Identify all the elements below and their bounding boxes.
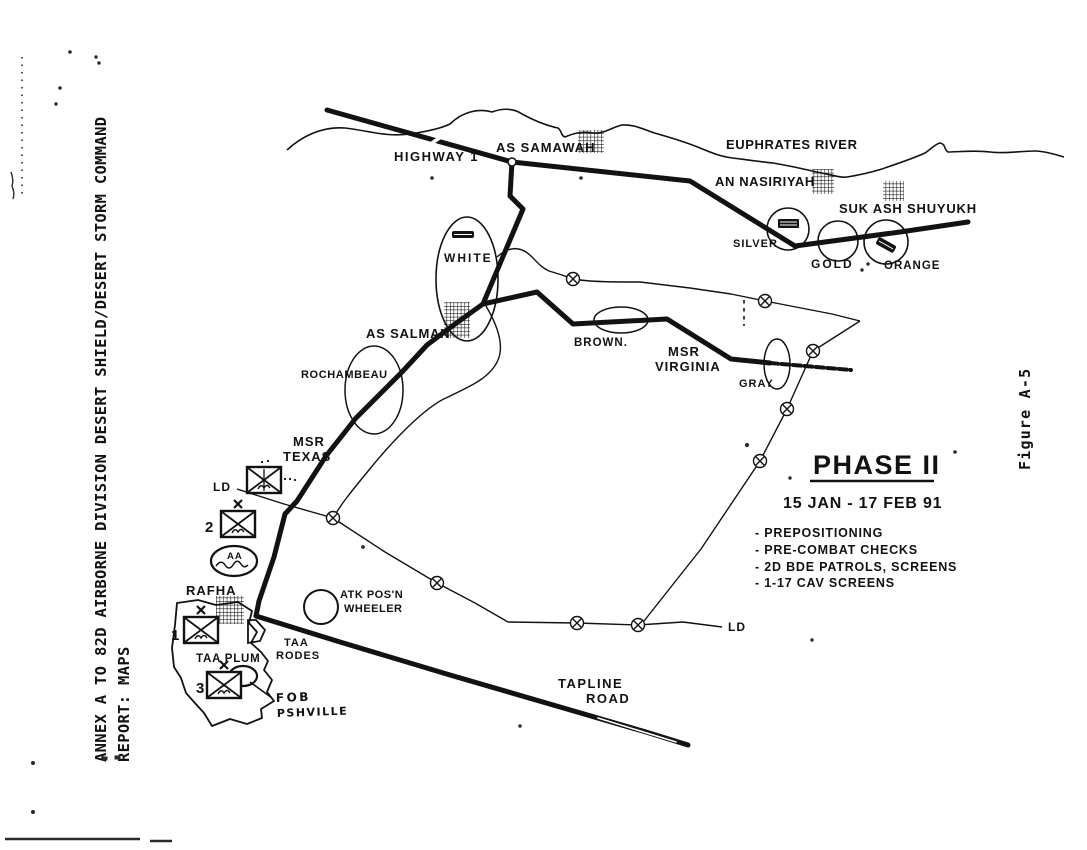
unit-symbol-1bde (184, 606, 218, 643)
msr-virginia-label-1: MSR (668, 344, 700, 359)
phase-bullet-2: - PRE-COMBAT CHECKS (755, 543, 918, 557)
msr-texas-label-1: MSR (293, 434, 325, 449)
aa-label: AA (227, 551, 243, 562)
white-airstrip-icon (452, 231, 474, 238)
fob-label-2: PSHVILLE (277, 705, 349, 720)
north-south-road (483, 162, 523, 304)
phase-bullet-3: - 2D BDE PATROLS, SCREENS (755, 560, 957, 574)
rafha-label: RAFHA (186, 583, 237, 598)
msr-texas-label-2: TEXAS (283, 449, 331, 464)
annex-annotation-line1: ANNEX A TO 82D AIRBORNE DIVISION DESERT … (92, 117, 110, 762)
checkpoint-marker-icon (431, 577, 444, 590)
checkpoint-marker-icon (781, 403, 794, 416)
silver-airstrip-icon (778, 219, 799, 228)
orange-label: ORANGE (884, 260, 940, 272)
gray-label: GRAY (739, 378, 774, 390)
tapline-road-label-2: ROAD (586, 691, 630, 706)
msr-virginia-road (483, 292, 770, 363)
rochambeau-label: ROCHAMBEAU (301, 369, 388, 381)
checkpoint-marker-icon (754, 455, 767, 468)
atk-posn-label-2: WHEELER (344, 603, 403, 615)
checkpoint-marker-icon (571, 617, 584, 630)
white-label: WHITE (444, 251, 493, 265)
tapline-road-label-1: TAPLINE (558, 676, 623, 691)
gold-label: GOLD (811, 257, 854, 271)
south-ld-line (508, 622, 722, 627)
checkpoint-marker-icon (759, 295, 772, 308)
an-nasiriyah-label: AN NASIRIYAH (715, 174, 815, 189)
brigade-echelon-icon (234, 500, 242, 508)
as-salman-label: AS SALMAN (366, 326, 450, 341)
checkpoint-marker-icon (632, 619, 645, 632)
msr-virginia-label-2: VIRGINIA (655, 359, 721, 374)
highway1-label: HIGHWAY 1 (394, 149, 479, 164)
phase-bullet-1: - PREPOSITIONING (755, 526, 883, 540)
brigade-echelon-icon (197, 606, 205, 614)
taa-rodes-label-1: TAA (284, 637, 309, 649)
rafha-town-icon (216, 596, 244, 624)
an-nasiriyah-town-icon (812, 169, 834, 194)
north-boundary (497, 249, 860, 321)
unit-number-3: 3 (196, 680, 204, 697)
atk-posn-label-1: ATK POS'N (340, 589, 403, 601)
unit-number-2: 2 (205, 519, 213, 536)
suk-ash-shuyukh-label: SUK ASH SHUYUKH (839, 201, 977, 216)
phase-bullet-4: - 1-17 CAV SCREENS (755, 576, 895, 590)
phase-date-range: 15 JAN - 17 FEB 91 (783, 495, 942, 512)
checkpoint-marker-icon (327, 512, 340, 525)
suk-ash-shuyukh-town-icon (883, 181, 904, 201)
taa-rodes-label-2: RODES (276, 650, 320, 662)
checkpoint-marker-icon (807, 345, 820, 358)
unit-symbol-ld-brigade (247, 460, 296, 493)
figure-label: Figure A-5 (1016, 368, 1034, 470)
fob-label-1: FOB (276, 690, 312, 705)
taa-plum-label: TAA PLUM (196, 653, 261, 665)
scanned-map-page: 1 2 3 HIGHWAY 1 AS SAMAWAH EUPHRATES RIV… (0, 0, 1087, 850)
silver-label: SILVER (733, 238, 778, 250)
unit-symbol-2bde (221, 500, 255, 537)
road-junction-node (508, 158, 516, 166)
msr-virginia-road-dashed-end (770, 363, 851, 370)
ld-west-label: LD (213, 480, 231, 494)
ld-east-label: LD (728, 620, 746, 634)
euphrates-river-label: EUPHRATES RIVER (726, 137, 858, 152)
phase-panel: PHASE II 15 JAN - 17 FEB 91 - PREPOSITIO… (755, 450, 957, 590)
unit-number-1: 1 (171, 627, 179, 644)
tapline-road-core (598, 718, 676, 742)
atk-posn-wheeler-circle (304, 590, 338, 624)
operations-map: 1 2 3 HIGHWAY 1 AS SAMAWAH EUPHRATES RIV… (0, 0, 1087, 850)
aa-scribble (216, 561, 248, 568)
phase-title: PHASE II (813, 450, 941, 480)
brown-label: BROWN. (574, 337, 628, 349)
as-samawah-label: AS SAMAWAH (496, 140, 596, 155)
annex-annotation-line2: REPORT: MAPS (115, 646, 133, 762)
euphrates-river-line (287, 109, 1064, 177)
orange-airstrip-icon (875, 237, 896, 254)
checkpoint-marker-icon (567, 273, 580, 286)
